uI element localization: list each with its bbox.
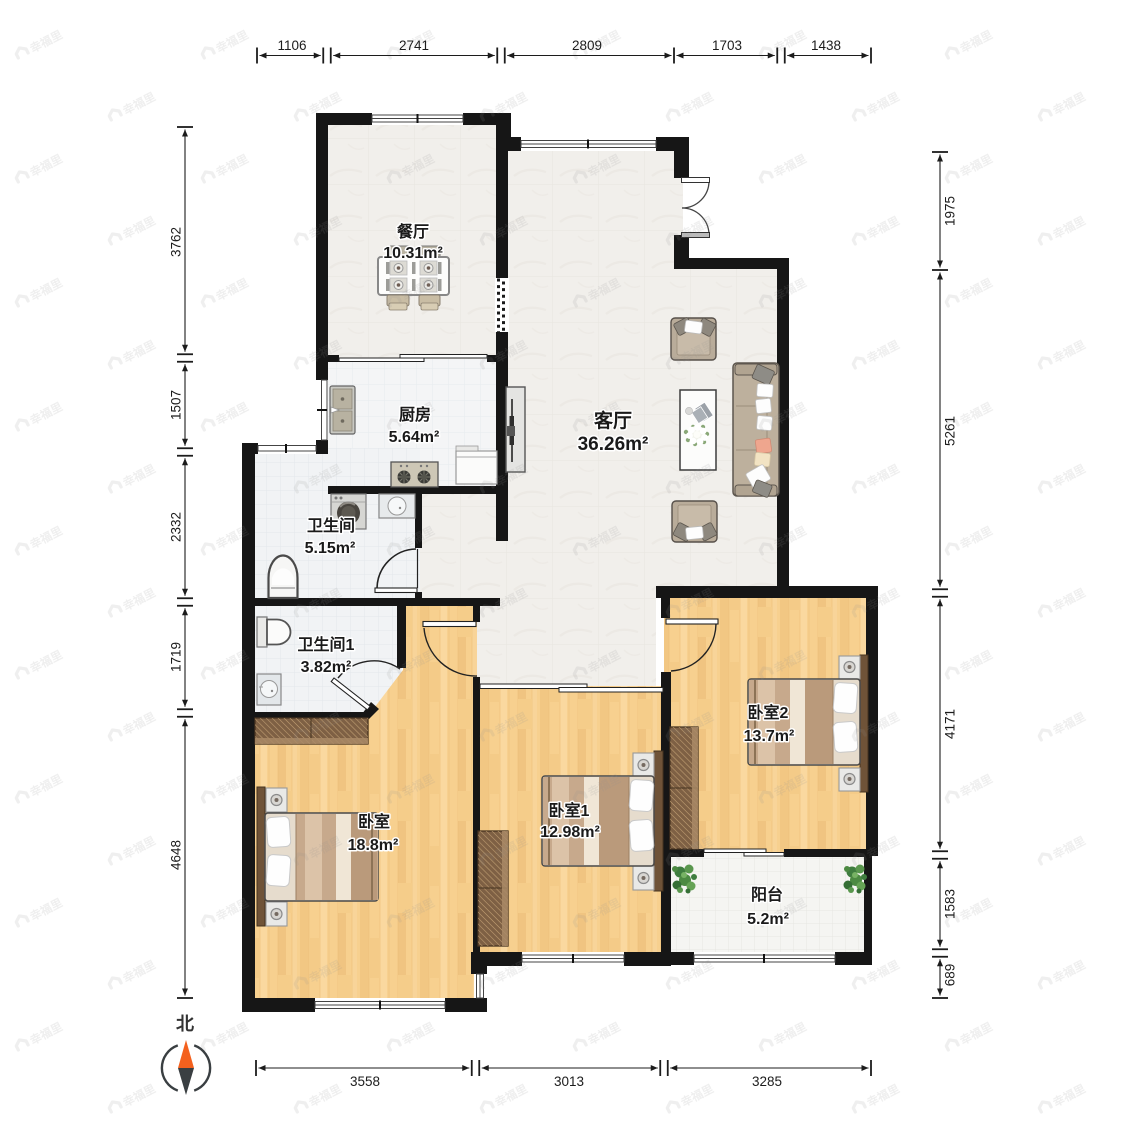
svg-text:卧室2: 卧室2 xyxy=(748,703,789,722)
svg-text:5.15m²: 5.15m² xyxy=(305,540,356,557)
svg-text:1507: 1507 xyxy=(169,390,184,420)
svg-text:3013: 3013 xyxy=(554,1074,584,1089)
svg-text:1583: 1583 xyxy=(943,889,958,919)
svg-text:13.7m²: 13.7m² xyxy=(744,728,795,745)
svg-text:3558: 3558 xyxy=(350,1074,380,1089)
svg-text:1703: 1703 xyxy=(712,38,742,53)
svg-text:1975: 1975 xyxy=(943,196,958,226)
svg-text:卧室: 卧室 xyxy=(358,812,390,831)
svg-text:3285: 3285 xyxy=(752,1074,782,1089)
svg-text:10.31m²: 10.31m² xyxy=(383,245,443,262)
svg-text:2809: 2809 xyxy=(572,38,602,53)
svg-text:5.64m²: 5.64m² xyxy=(389,429,440,446)
svg-text:厨房: 厨房 xyxy=(399,405,431,424)
svg-text:1106: 1106 xyxy=(277,38,306,53)
svg-text:3762: 3762 xyxy=(169,227,184,257)
svg-text:4171: 4171 xyxy=(943,709,958,739)
svg-text:5261: 5261 xyxy=(943,416,958,446)
svg-text:18.8m²: 18.8m² xyxy=(348,837,399,854)
svg-text:餐厅: 餐厅 xyxy=(396,222,429,241)
svg-text:689: 689 xyxy=(943,964,958,987)
svg-text:1438: 1438 xyxy=(811,38,841,53)
svg-text:3.82m²: 3.82m² xyxy=(301,659,352,676)
svg-text:2332: 2332 xyxy=(169,512,184,542)
svg-text:2741: 2741 xyxy=(399,38,429,53)
svg-text:36.26m²: 36.26m² xyxy=(578,434,649,455)
svg-text:1719: 1719 xyxy=(169,642,184,672)
svg-text:卧室1: 卧室1 xyxy=(549,801,590,820)
svg-text:卫生间: 卫生间 xyxy=(307,516,355,535)
svg-text:卫生间1: 卫生间1 xyxy=(298,635,355,654)
svg-text:12.98m²: 12.98m² xyxy=(540,824,600,841)
svg-text:北: 北 xyxy=(176,1014,194,1034)
svg-text:客厅: 客厅 xyxy=(594,409,632,432)
svg-text:阳台: 阳台 xyxy=(751,885,783,904)
svg-text:5.2m²: 5.2m² xyxy=(747,911,789,928)
svg-text:4648: 4648 xyxy=(169,840,184,870)
